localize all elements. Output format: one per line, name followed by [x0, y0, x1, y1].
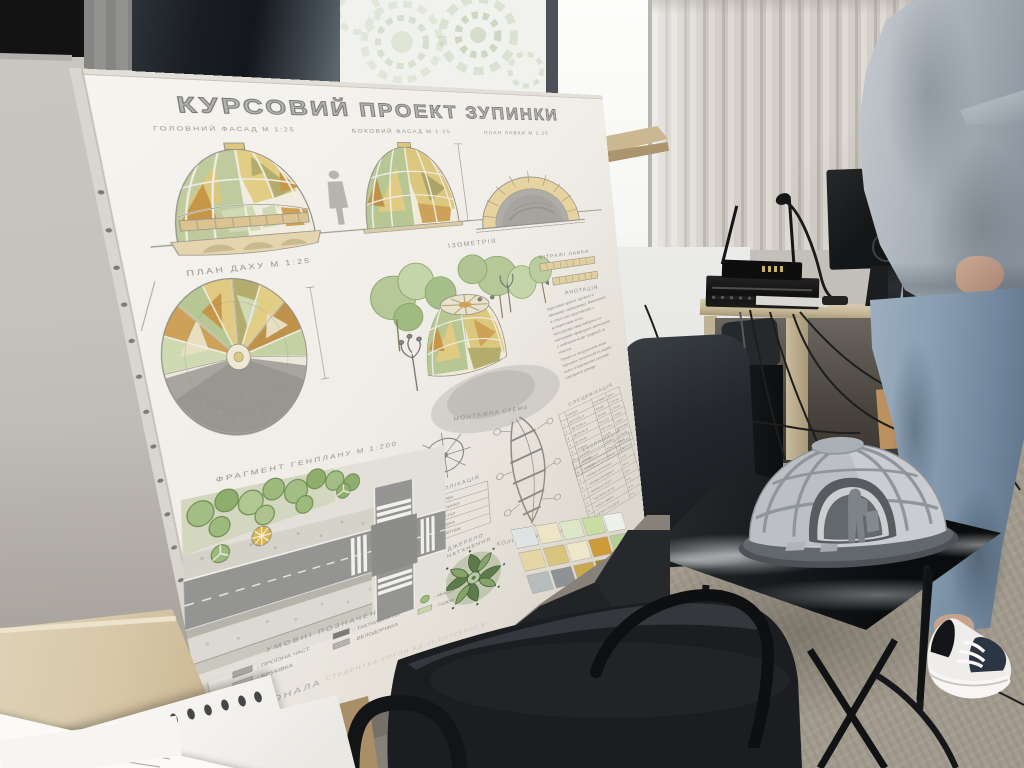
svg-text:ГОЛОВНИЙ ФАСАД М 1:25: ГОЛОВНИЙ ФАСАД М 1:25 — [152, 124, 296, 132]
svg-text:БОКОВИЙ ФАСАД М 1:25: БОКОВИЙ ФАСАД М 1:25 — [351, 127, 451, 134]
svg-text:ПЛАН ЛАВКИ М 1:25: ПЛАН ЛАВКИ М 1:25 — [484, 130, 549, 135]
